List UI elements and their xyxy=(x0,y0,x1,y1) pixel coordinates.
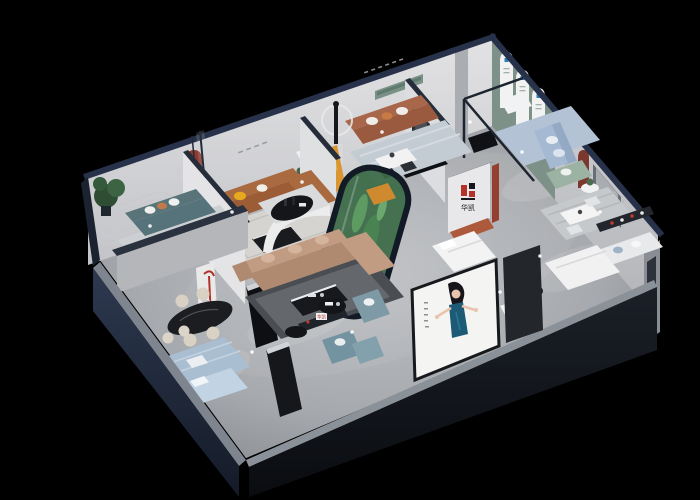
showroom-render: 华凯 xyxy=(0,0,700,500)
brand-logo-text: 华凯 xyxy=(461,203,475,212)
potted-plant xyxy=(587,179,594,186)
red-pillar xyxy=(492,163,499,223)
corridor-recess xyxy=(455,46,468,139)
black-pedestal-table xyxy=(285,326,307,338)
screenshot-root: 华凯 xyxy=(0,0,700,500)
brand-shelf-sign: 华凯 xyxy=(317,314,326,321)
black-pedestal-table xyxy=(318,298,346,314)
yellow-pillow xyxy=(234,192,246,200)
woman-face xyxy=(452,290,461,299)
table-decor xyxy=(390,153,395,158)
dark-panel xyxy=(503,245,543,343)
